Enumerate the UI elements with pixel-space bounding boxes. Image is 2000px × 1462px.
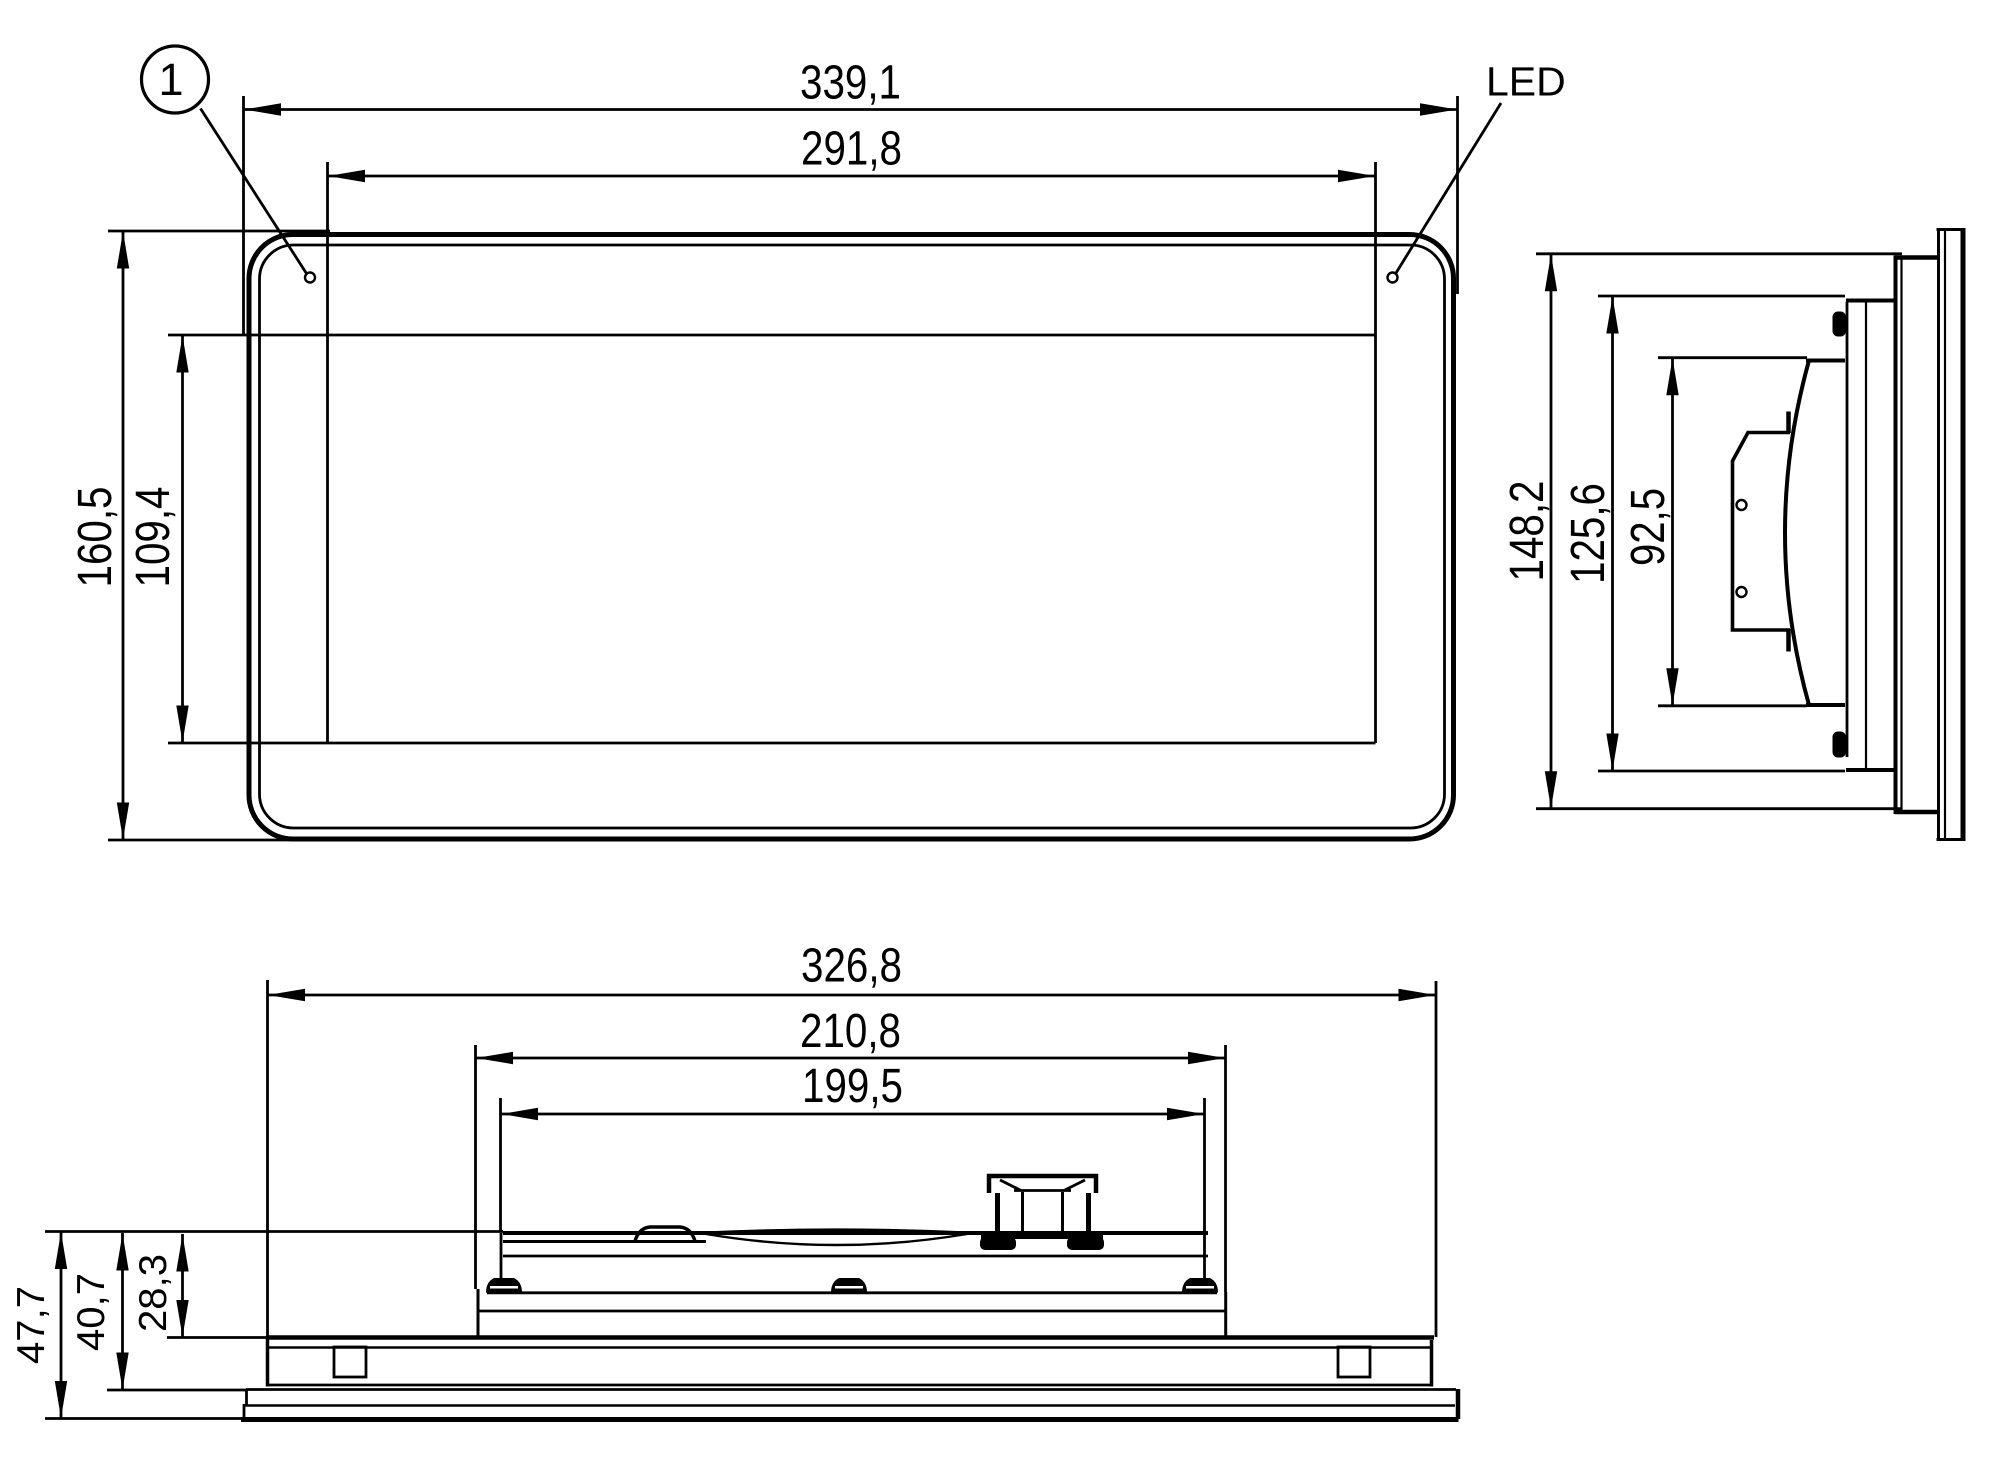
svg-text:LED: LED bbox=[1486, 59, 1566, 105]
svg-text:210,8: 210,8 bbox=[800, 1005, 901, 1058]
svg-text:47,7: 47,7 bbox=[10, 1286, 53, 1364]
svg-text:40,7: 40,7 bbox=[70, 1273, 113, 1351]
svg-text:1: 1 bbox=[158, 54, 183, 105]
svg-text:291,8: 291,8 bbox=[801, 123, 902, 176]
svg-text:326,8: 326,8 bbox=[801, 940, 902, 993]
svg-text:109,4: 109,4 bbox=[127, 487, 180, 588]
svg-text:148,2: 148,2 bbox=[1501, 481, 1554, 582]
svg-text:125,6: 125,6 bbox=[1562, 483, 1615, 584]
svg-text:339,1: 339,1 bbox=[800, 57, 901, 110]
svg-text:160,5: 160,5 bbox=[69, 487, 122, 588]
svg-text:92,5: 92,5 bbox=[1622, 488, 1675, 566]
svg-text:199,5: 199,5 bbox=[802, 1060, 903, 1113]
svg-text:28,3: 28,3 bbox=[132, 1254, 175, 1332]
